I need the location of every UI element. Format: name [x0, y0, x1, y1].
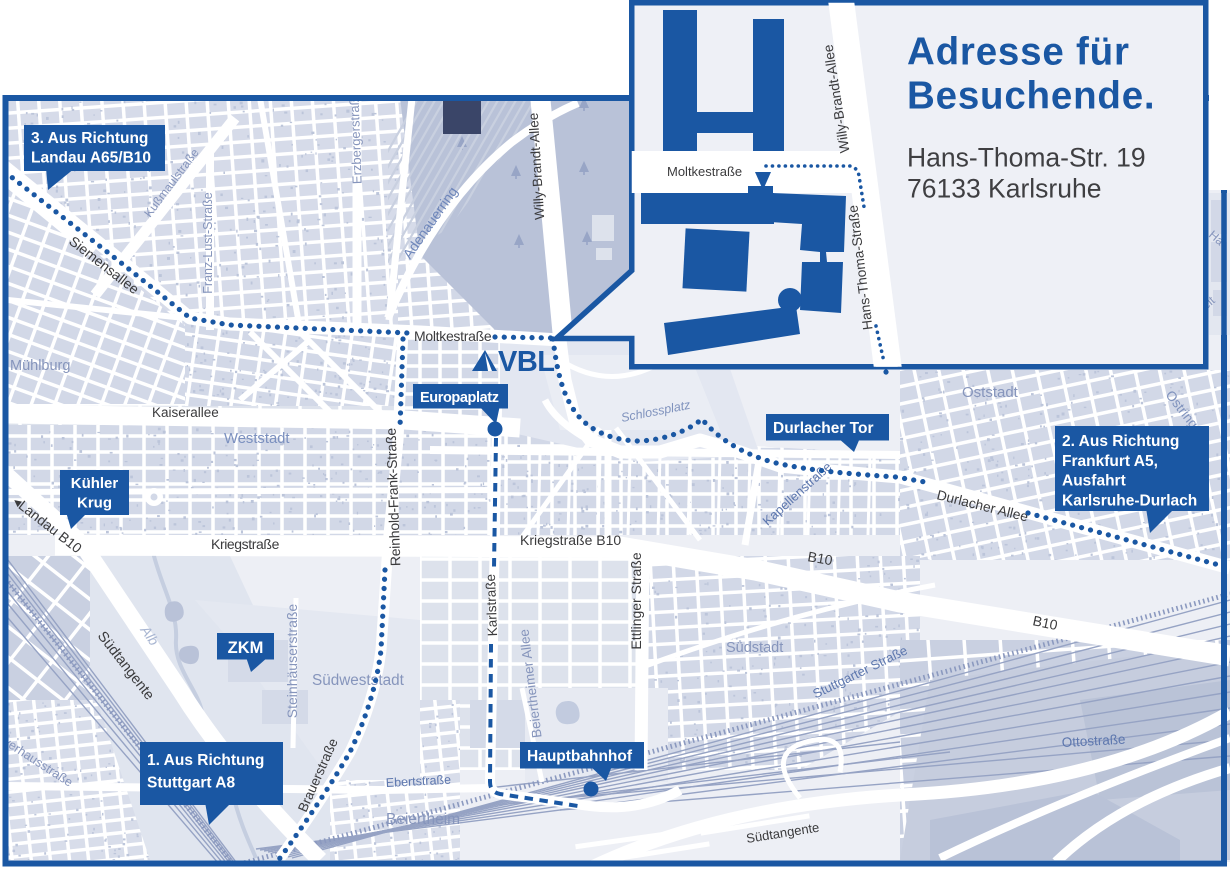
svg-text:Landau A65/B10: Landau A65/B10: [31, 150, 151, 167]
svg-text:Durlacher Tor: Durlacher Tor: [773, 420, 874, 437]
svg-text:Beiertheim: Beiertheim: [386, 811, 460, 828]
svg-text:Besuchende.: Besuchende.: [907, 75, 1155, 118]
svg-text:Steinhäuserstraße: Steinhäuserstraße: [284, 604, 300, 719]
svg-text:Adresse für: Adresse für: [907, 31, 1130, 74]
svg-text:Hauptbahnhof: Hauptbahnhof: [527, 748, 633, 765]
svg-text:Oststadt: Oststadt: [962, 384, 1019, 401]
svg-text:Moltkestraße: Moltkestraße: [414, 328, 492, 344]
svg-text:Krug: Krug: [77, 495, 112, 512]
svg-text:Karlstraße: Karlstraße: [483, 574, 500, 637]
svg-text:Kühler: Kühler: [71, 475, 119, 492]
svg-text:Weststadt: Weststadt: [224, 431, 290, 447]
svg-text:Europaplatz: Europaplatz: [420, 390, 499, 406]
svg-text:Kaiserallee: Kaiserallee: [152, 405, 219, 420]
svg-text:3. Aus Richtung: 3. Aus Richtung: [31, 130, 148, 147]
svg-text:Karlsruhe-Durlach: Karlsruhe-Durlach: [1062, 492, 1197, 509]
svg-text:Hans-Thoma-Str. 19: Hans-Thoma-Str. 19: [907, 143, 1146, 173]
svg-text:Ausfahrt: Ausfahrt: [1062, 473, 1126, 490]
svg-text:Ettlinger Straße: Ettlinger Straße: [628, 552, 644, 649]
svg-text:1. Aus Richtung: 1. Aus Richtung: [147, 752, 264, 769]
svg-text:Kriegstraße B10: Kriegstraße B10: [520, 532, 621, 548]
svg-text:Franz-Lust-Straße: Franz-Lust-Straße: [201, 192, 215, 293]
svg-text:Frankfurt A5,: Frankfurt A5,: [1062, 453, 1158, 470]
svg-text:2. Aus Richtung: 2. Aus Richtung: [1062, 433, 1179, 450]
svg-text:ZKM: ZKM: [228, 639, 264, 657]
svg-text:VBL: VBL: [498, 346, 555, 378]
svg-text:Moltkestraße: Moltkestraße: [667, 164, 742, 179]
svg-text:Mühlburg: Mühlburg: [10, 358, 70, 374]
svg-text:Kriegstraße: Kriegstraße: [211, 536, 280, 552]
svg-text:Südweststadt: Südweststadt: [312, 672, 405, 689]
svg-text:Südstadt: Südstadt: [726, 640, 783, 656]
svg-text:Stuttgart A8: Stuttgart A8: [147, 775, 235, 792]
svg-text:76133 Karlsruhe: 76133 Karlsruhe: [907, 174, 1101, 204]
